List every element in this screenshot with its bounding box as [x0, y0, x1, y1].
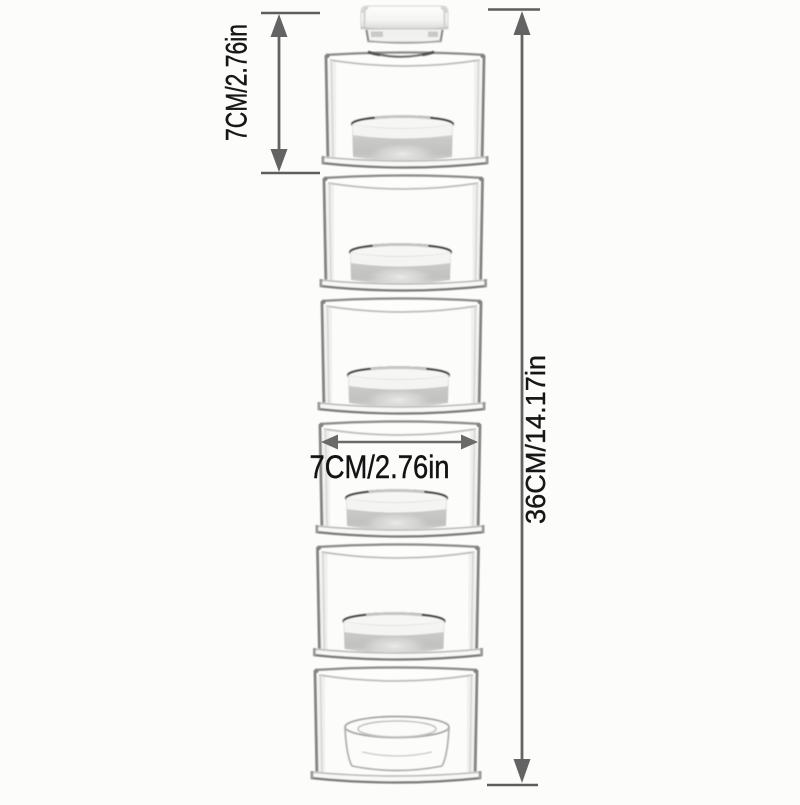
svg-text:7CM/2.76in: 7CM/2.76in [310, 449, 450, 485]
svg-text:36CM/14.17in: 36CM/14.17in [520, 355, 551, 524]
svg-text:7CM/2.76in: 7CM/2.76in [221, 24, 254, 141]
